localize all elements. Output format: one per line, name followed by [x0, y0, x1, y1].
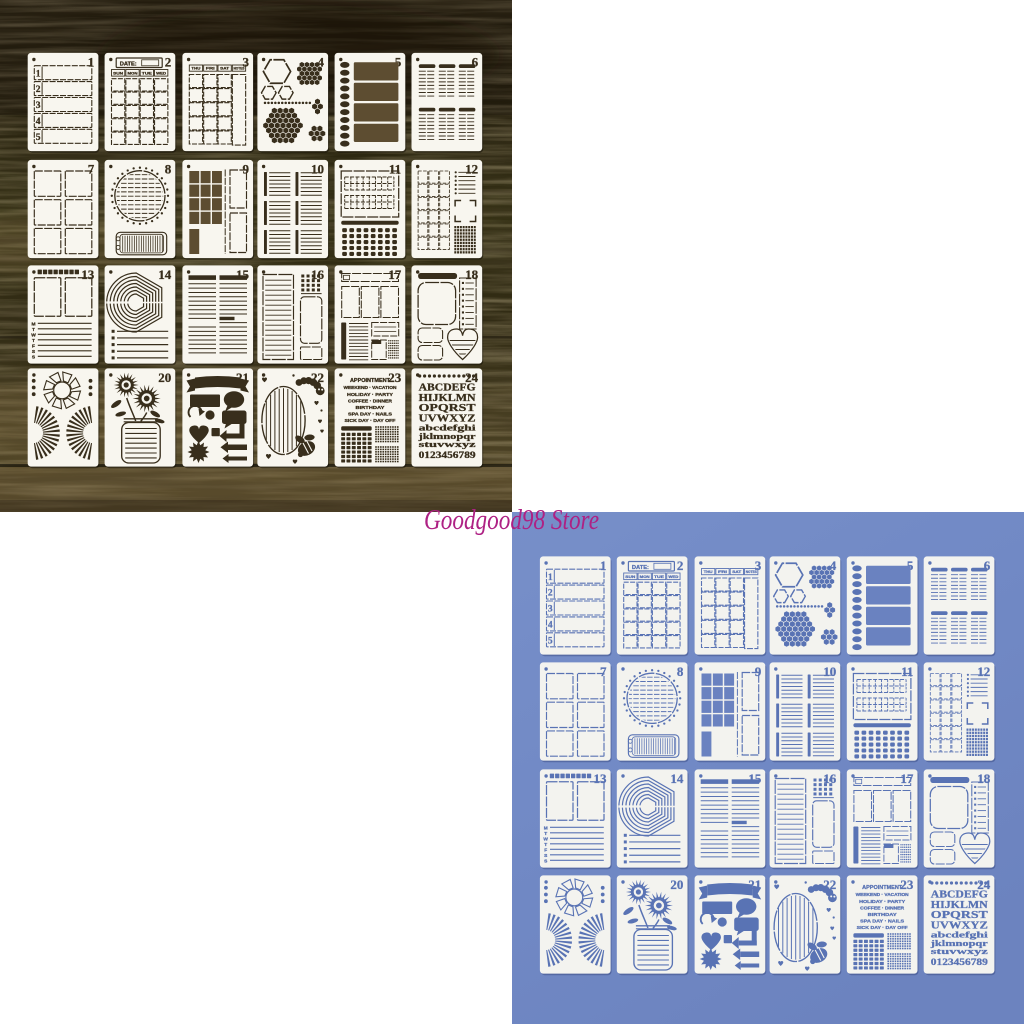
svg-text:Goodgood98 Store: Goodgood98 Store — [424, 505, 599, 536]
